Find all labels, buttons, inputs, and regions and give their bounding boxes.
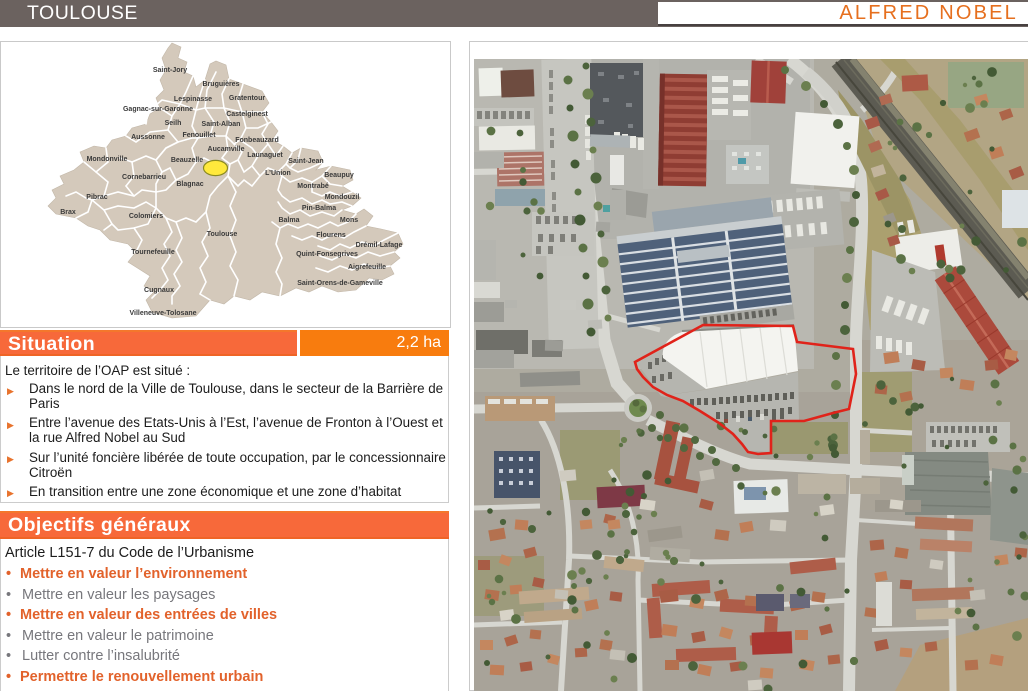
svg-text:Cornebarrieu: Cornebarrieu [122,174,166,181]
svg-text:Aucamville: Aucamville [208,146,245,153]
svg-text:Saint-Jean: Saint-Jean [288,158,323,165]
svg-text:Colomiers: Colomiers [129,213,163,220]
svg-text:Tournefeuille: Tournefeuille [131,249,175,256]
svg-text:Lespinasse: Lespinasse [174,96,212,103]
svg-text:Montrabé: Montrabé [297,183,329,190]
svg-text:Beaupuy: Beaupuy [324,172,354,179]
svg-text:Toulouse: Toulouse [207,231,238,238]
svg-text:Mondouzil: Mondouzil [325,194,360,201]
svg-text:Fenouillet: Fenouillet [182,132,216,139]
svg-text:Launaguet: Launaguet [247,152,283,159]
svg-text:Drémil-Lafage: Drémil-Lafage [356,242,403,249]
svg-text:Balma: Balma [278,217,299,224]
svg-text:Villeneuve-Tolosane: Villeneuve-Tolosane [129,310,196,317]
svg-text:Aigrefeuille: Aigrefeuille [348,264,386,271]
svg-text:Pibrac: Pibrac [86,194,108,201]
svg-text:Seilh: Seilh [165,120,182,127]
svg-text:Castelginest: Castelginest [226,111,268,118]
svg-text:Gagnac-sur-Garonne: Gagnac-sur-Garonne [123,106,193,113]
svg-text:Blagnac: Blagnac [176,181,203,188]
svg-text:Saint-Jory: Saint-Jory [153,67,187,74]
svg-text:Quint-Fonsegrives: Quint-Fonsegrives [296,251,358,258]
svg-text:Flourens: Flourens [316,232,346,239]
svg-text:Pin-Balma: Pin-Balma [302,205,336,212]
svg-text:Cugnaux: Cugnaux [144,287,174,294]
svg-text:L’Union: L’Union [265,170,291,177]
svg-text:Brax: Brax [60,209,76,216]
svg-text:Saint-Alban: Saint-Alban [202,121,241,128]
svg-text:Aussonne: Aussonne [131,134,165,141]
svg-text:Bruguières: Bruguières [203,81,240,88]
svg-text:Mons: Mons [340,217,358,224]
svg-text:Beauzelle: Beauzelle [171,157,203,164]
svg-text:Fonbeauzard: Fonbeauzard [235,137,279,144]
svg-text:Mondonville: Mondonville [87,156,128,163]
svg-text:Saint-Orens-de-Gameville: Saint-Orens-de-Gameville [297,280,383,287]
svg-text:Gratentour: Gratentour [229,95,265,102]
